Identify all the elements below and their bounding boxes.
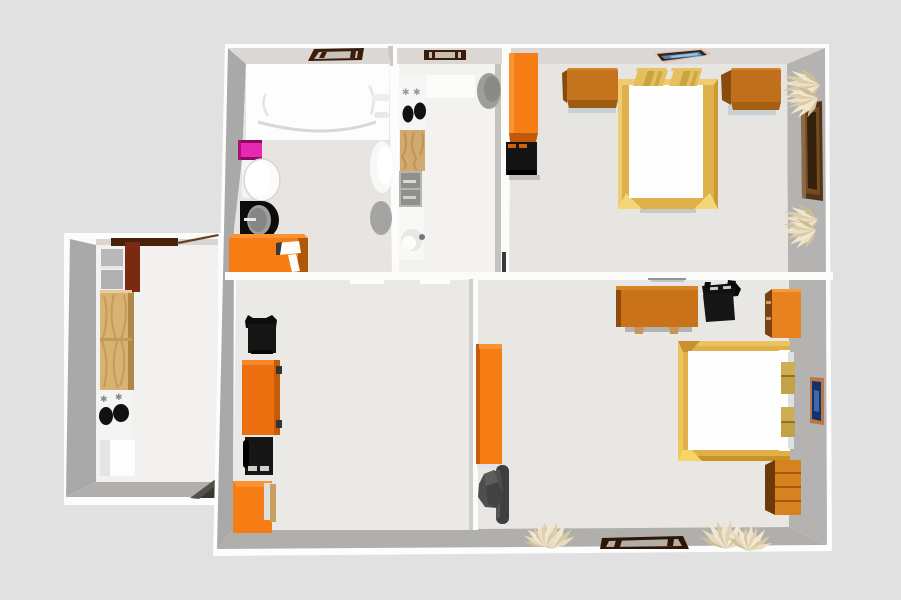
svg-text:✱: ✱ <box>115 392 123 402</box>
svg-text:✱: ✱ <box>402 87 410 97</box>
svg-text:✱: ✱ <box>413 87 421 97</box>
svg-text:✱: ✱ <box>100 394 108 404</box>
